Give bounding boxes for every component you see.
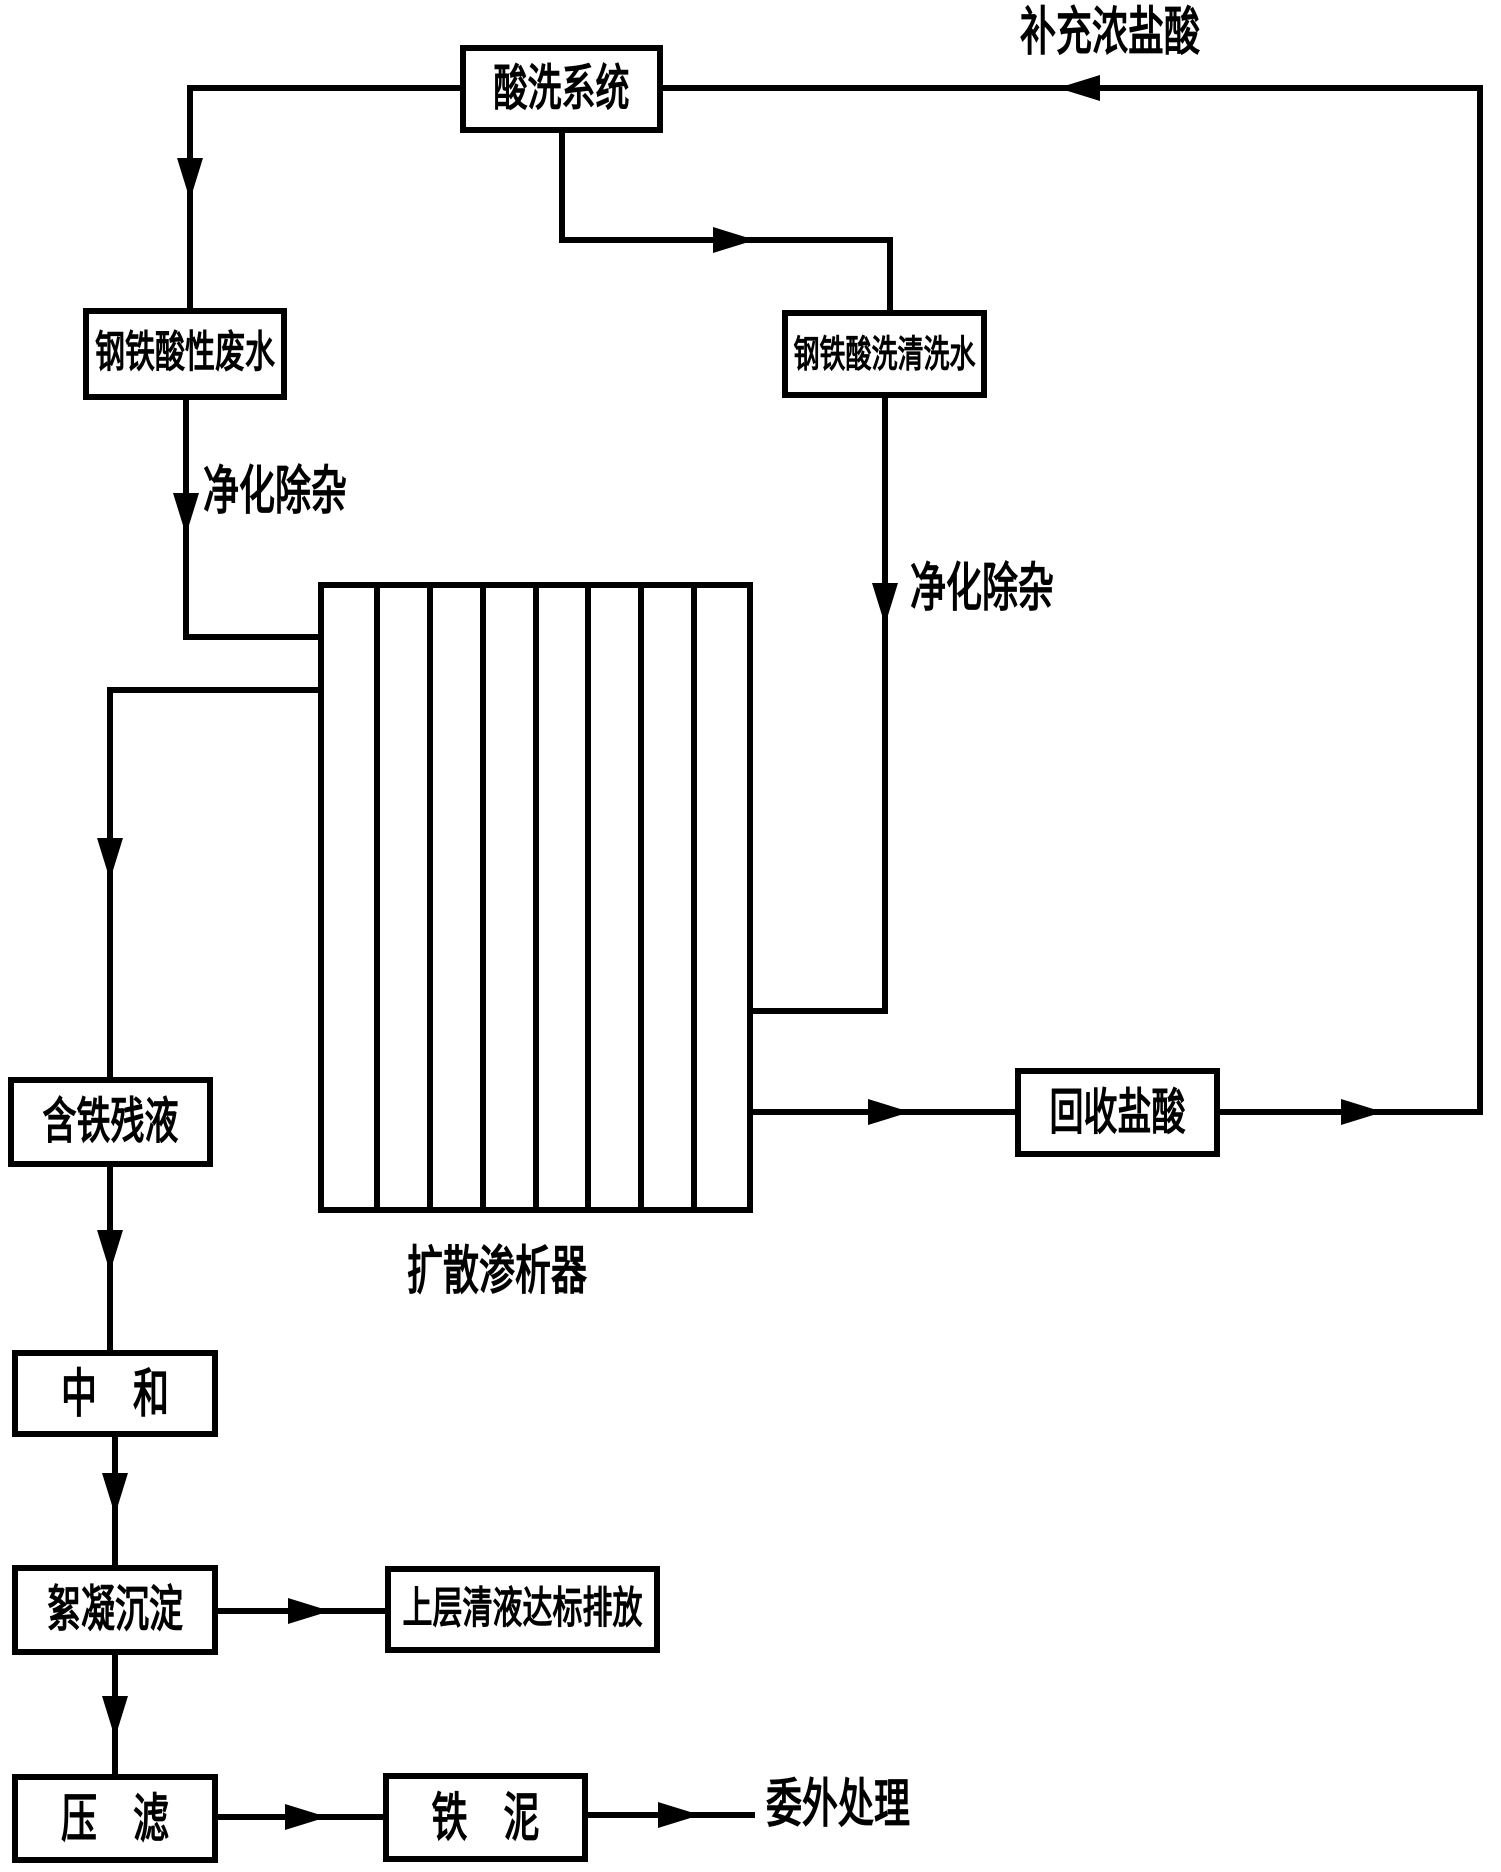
dialyzer-vessel (318, 582, 753, 1213)
line-rinse-out (882, 398, 888, 1014)
node-recovered-hcl-label: 回收盐酸 (1050, 1088, 1186, 1137)
label-makeup-concentrated-hcl: 补充浓盐酸 (1005, 14, 1215, 50)
arrow-into-wastewater (177, 158, 203, 200)
label-purify-left: 净化除杂 (203, 473, 347, 509)
node-pickling-system: 酸洗系统 (460, 45, 663, 133)
node-recovered-hcl: 回收盐酸 (1015, 1068, 1220, 1157)
arrow-to-recovered (868, 1099, 910, 1125)
line-into-dialyzer-left (183, 634, 318, 640)
node-iron-sludge: 铁 泥 (383, 1773, 588, 1862)
line-pickling-to-left (188, 85, 460, 91)
line-loop-up (1477, 85, 1483, 1115)
dialyzer-membrane-stripe (374, 588, 380, 1207)
dialyzer-membrane-stripe (691, 588, 697, 1207)
arrow-into-residual (97, 838, 123, 880)
node-steel-pickling-rinse-water-label: 钢铁酸洗清洗水 (793, 335, 975, 373)
line-pickling-down (559, 133, 565, 243)
arrow-residual-to-neutralization (97, 1230, 123, 1272)
line-into-rinse (887, 237, 893, 310)
node-steel-pickling-rinse-water: 钢铁酸洗清洗水 (782, 310, 987, 398)
label-outsourced-treatment: 委外处理 (766, 1786, 910, 1822)
label-dialyzer: 扩散渗析器 (367, 1253, 627, 1289)
arrow-to-sludge (285, 1804, 327, 1830)
arrow-wastewater-purify (173, 493, 199, 535)
arrow-recovered-to-loop (1341, 1099, 1383, 1125)
dialyzer-membrane-stripe (585, 588, 591, 1207)
node-press-filtration-label: 压 滤 (61, 1792, 169, 1844)
dialyzer-membrane-stripe (638, 588, 644, 1207)
arrow-to-rinse (713, 227, 755, 253)
node-supernatant-discharge: 上层清液达标排放 (385, 1566, 660, 1653)
dialyzer-membrane-stripe (533, 588, 539, 1207)
dialyzer-membrane-stripe (480, 588, 486, 1207)
line-dialyzer-out-left (107, 687, 318, 693)
line-into-dialyzer-right (753, 1008, 885, 1014)
node-steel-acid-wastewater-label: 钢铁酸性废水 (95, 332, 275, 376)
arrow-neutralization-to-flocculation (102, 1473, 128, 1515)
node-pickling-system-label: 酸洗系统 (494, 64, 630, 113)
line-into-residual (107, 687, 113, 1077)
node-iron-residual-liquid-label: 含铁残液 (43, 1097, 179, 1146)
node-neutralization-label: 中 和 (61, 1367, 169, 1419)
node-flocculation-sedimentation-label: 絮凝沉淀 (47, 1585, 183, 1634)
node-iron-residual-liquid: 含铁残液 (8, 1077, 213, 1167)
arrow-to-outsourced (658, 1802, 700, 1828)
arrow-loop-to-pickling (1058, 75, 1100, 101)
arrow-to-supernatant (288, 1598, 330, 1624)
node-iron-sludge-label: 铁 泥 (431, 1791, 539, 1843)
node-press-filtration: 压 滤 (12, 1774, 218, 1863)
dialyzer-membrane-stripe (427, 588, 433, 1207)
label-purify-right: 净化除杂 (910, 570, 1054, 606)
arrow-rinse-purify (872, 583, 898, 625)
node-neutralization: 中 和 (12, 1350, 218, 1437)
node-flocculation-sedimentation: 絮凝沉淀 (12, 1565, 218, 1655)
node-supernatant-discharge-label: 上层清液达标排放 (403, 1588, 643, 1632)
arrow-flocculation-to-press (102, 1696, 128, 1738)
flow-diagram: 酸洗系统 钢铁酸性废水 钢铁酸洗清洗水 含铁残液 回收盐酸 中 和 絮凝沉淀 上… (0, 0, 1501, 1872)
node-steel-acid-wastewater: 钢铁酸性废水 (83, 308, 287, 400)
